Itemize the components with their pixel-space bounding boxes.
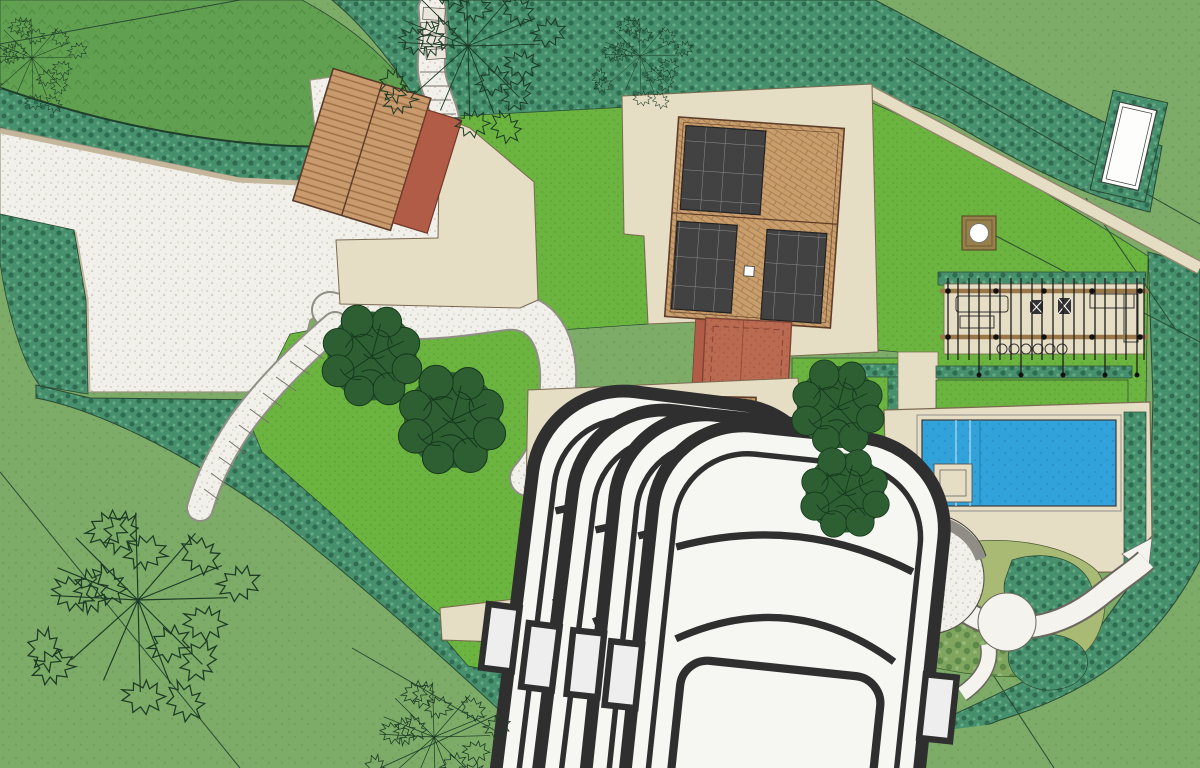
site-plan-drawing <box>0 0 1200 768</box>
site-plan-canvas <box>0 0 1200 768</box>
upper-house <box>665 117 845 328</box>
garden-well <box>962 216 996 250</box>
solar-array-3 <box>761 229 827 323</box>
path-to-pergola <box>898 352 938 416</box>
solar-array-2 <box>671 221 737 313</box>
solar-array-1 <box>680 125 766 214</box>
pergola-hedge-row <box>936 366 1132 378</box>
roof-skylight <box>744 266 755 277</box>
